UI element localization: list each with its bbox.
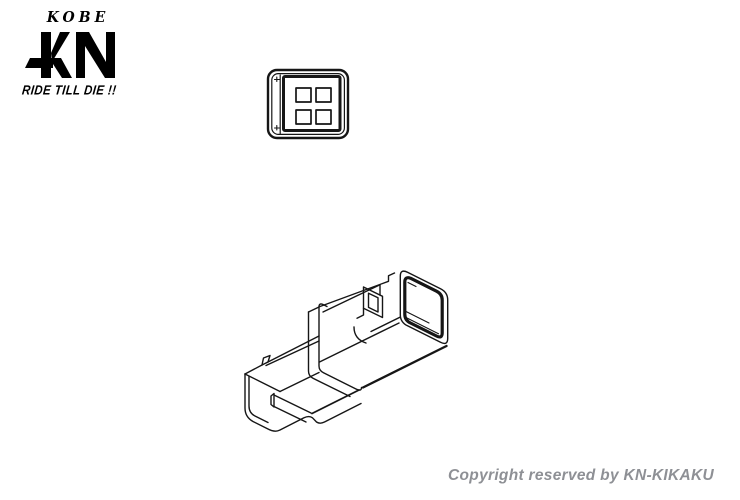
kn-monogram-icon: [22, 26, 122, 84]
connector-isometric-view-drawing: [230, 255, 462, 465]
logo-tagline-text: RIDE TILL DIE !!: [21, 84, 132, 98]
connector-front-view-drawing: [263, 62, 355, 144]
product-image-canvas: KOBE RIDE TILL DIE !!: [0, 0, 740, 500]
logo-kobe-text: KOBE: [30, 10, 126, 27]
brand-logo: KOBE RIDE TILL DIE !!: [22, 10, 132, 97]
copyright-text: Copyright reserved by KN-KIKAKU: [448, 467, 714, 485]
